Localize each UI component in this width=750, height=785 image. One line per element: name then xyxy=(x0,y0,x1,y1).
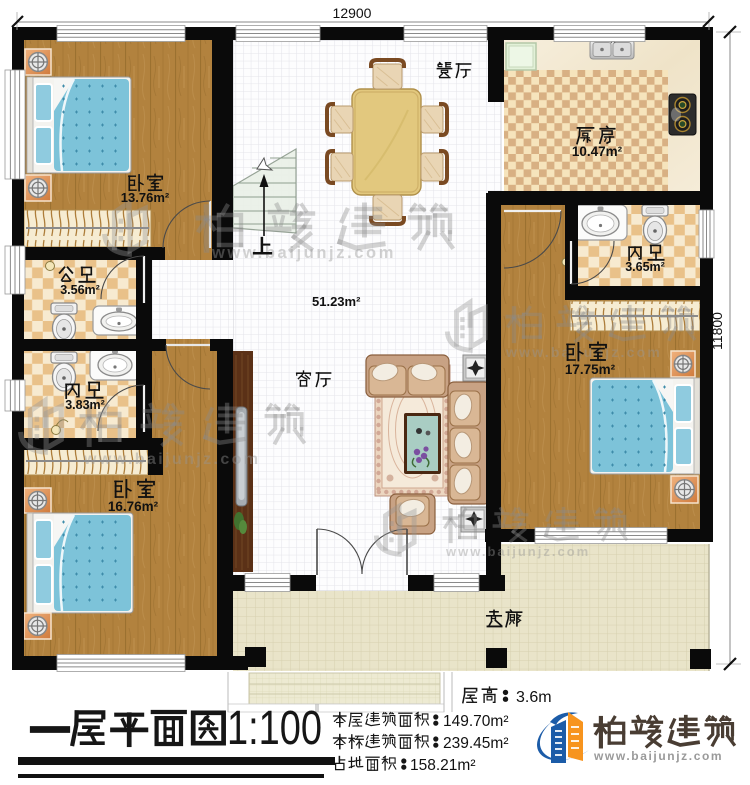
svg-text:www.baijunjz.com: www.baijunjz.com xyxy=(211,244,396,262)
svg-text:158.21m²: 158.21m² xyxy=(410,757,475,774)
svg-text:12900: 12900 xyxy=(333,5,372,21)
svg-text:10.47m²: 10.47m² xyxy=(572,144,623,159)
svg-text:149.70m²: 149.70m² xyxy=(443,713,508,730)
svg-text:1:100: 1:100 xyxy=(227,702,322,755)
svg-text:13.76m²: 13.76m² xyxy=(121,190,170,205)
svg-text:17.75m²: 17.75m² xyxy=(565,362,616,377)
svg-text:16.76m²: 16.76m² xyxy=(108,499,159,514)
svg-text:3.6m: 3.6m xyxy=(516,689,552,706)
svg-text:www.baijunjz.com: www.baijunjz.com xyxy=(445,544,590,559)
svg-text:www.baijunjz.com: www.baijunjz.com xyxy=(505,344,662,360)
svg-text:239.45m²: 239.45m² xyxy=(443,735,508,752)
svg-text:11800: 11800 xyxy=(709,312,725,350)
svg-text:3.56m²: 3.56m² xyxy=(60,283,100,297)
svg-text:3.83m²: 3.83m² xyxy=(65,398,105,412)
svg-text:3.65m²: 3.65m² xyxy=(625,260,665,274)
svg-text:51.23m²: 51.23m² xyxy=(312,294,361,309)
svg-text:www.baijunjz.com: www.baijunjz.com xyxy=(83,451,261,468)
svg-text:www.baijunjz.com: www.baijunjz.com xyxy=(593,749,723,763)
